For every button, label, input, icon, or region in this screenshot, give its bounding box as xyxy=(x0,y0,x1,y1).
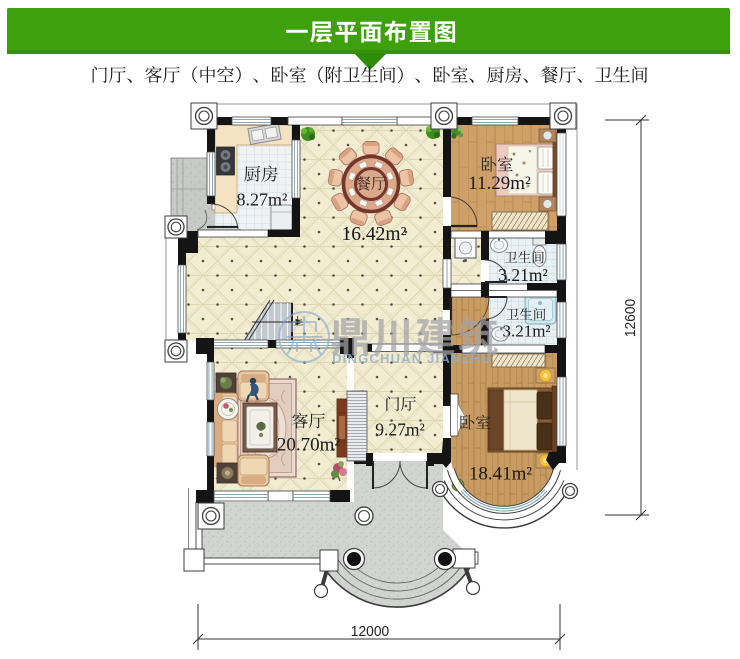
svg-text:20.70m²: 20.70m² xyxy=(277,435,341,456)
svg-text:9.27m²: 9.27m² xyxy=(375,420,424,440)
svg-text:16.42m²: 16.42m² xyxy=(342,224,407,245)
svg-text:11.29m²: 11.29m² xyxy=(468,173,531,194)
svg-text:12600: 12600 xyxy=(623,299,640,337)
svg-text:12000: 12000 xyxy=(351,624,389,641)
svg-text:3.21m²: 3.21m² xyxy=(502,322,550,341)
svg-text:DINGCHUAN JIANZHU: DINGCHUAN JIANZHU xyxy=(332,351,492,366)
svg-text:8.27m²: 8.27m² xyxy=(237,190,288,210)
svg-text:18.41m²: 18.41m² xyxy=(469,464,533,485)
svg-text:3.21m²: 3.21m² xyxy=(498,265,547,285)
